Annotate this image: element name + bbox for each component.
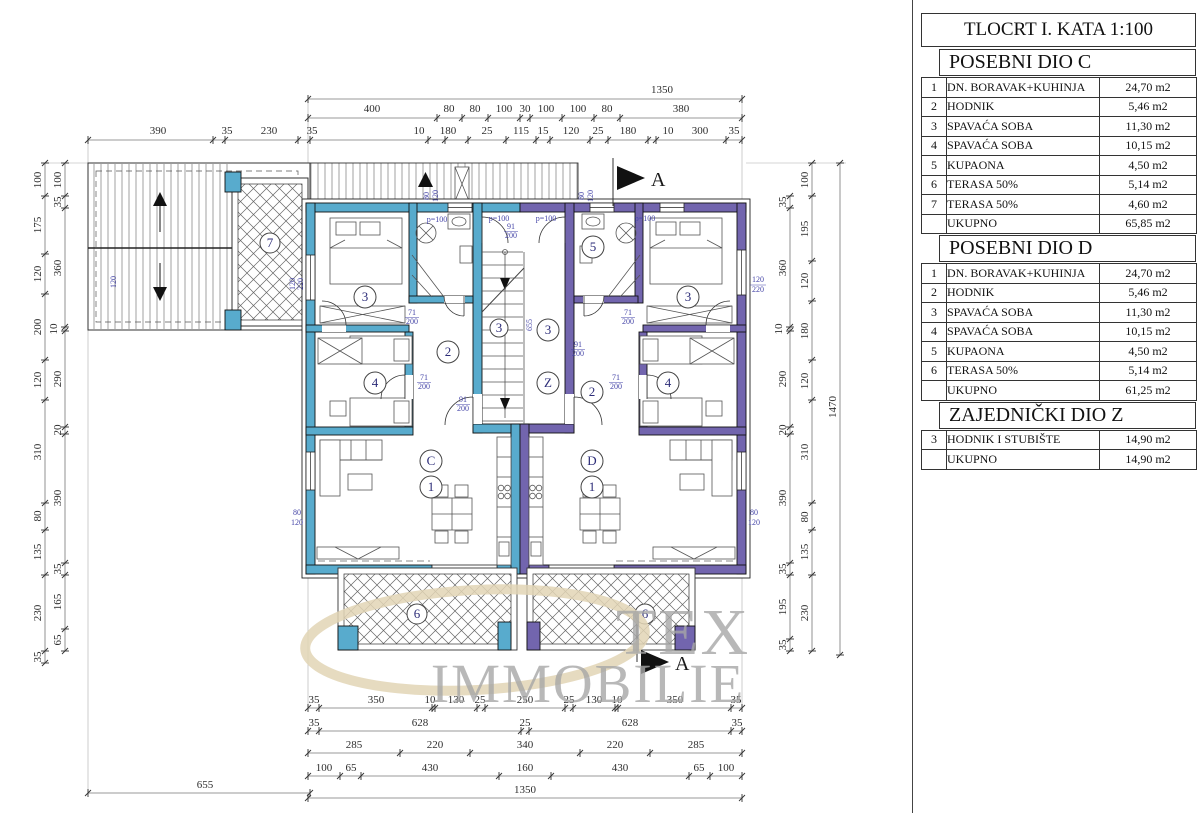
svg-text:285: 285	[346, 739, 363, 751]
room-number-cell: 1	[922, 264, 947, 284]
svg-text:220: 220	[607, 739, 624, 751]
svg-text:71: 71	[612, 373, 620, 382]
svg-text:628: 628	[412, 717, 429, 729]
svg-text:120: 120	[32, 371, 44, 388]
room-area-cell: 11,30 m2	[1100, 303, 1197, 323]
room-area-cell: 14,90 m2	[1100, 450, 1197, 470]
watermark-line2: IMMOBILIE	[431, 653, 745, 714]
room-name-cell: DN. BORAVAK+KUHINJA	[947, 264, 1100, 284]
svg-text:7: 7	[267, 235, 274, 250]
room-name-cell: TERASA 50%	[947, 175, 1100, 195]
svg-text:35: 35	[309, 717, 321, 729]
svg-text:120: 120	[291, 518, 303, 527]
svg-text:360: 360	[52, 259, 64, 276]
area-table-c: 1 DN. BORAVAK+KUHINJA 24,70 m2 2 HODNIK …	[921, 77, 1197, 234]
svg-text:390: 390	[150, 125, 167, 137]
svg-text:195: 195	[799, 220, 811, 237]
room-area-cell: 5,14 m2	[1100, 175, 1197, 195]
svg-text:360: 360	[777, 259, 789, 276]
svg-text:200: 200	[457, 404, 469, 413]
room-number-cell: 6	[922, 175, 947, 195]
svg-text:35: 35	[777, 196, 789, 208]
room-name-cell: UKUPNO	[947, 214, 1100, 234]
table-row: 5 KUPAONA 4,50 m2	[922, 342, 1197, 362]
svg-text:220: 220	[427, 739, 444, 751]
svg-text:D: D	[587, 453, 596, 468]
drawing-title: TLOCRT I. KATA 1:100	[921, 13, 1196, 47]
room-name-cell: SPAVAĆA SOBA	[947, 303, 1100, 323]
svg-text:100: 100	[799, 171, 811, 188]
room-name-cell: DN. BORAVAK+KUHINJA	[947, 78, 1100, 98]
svg-text:10: 10	[773, 323, 785, 335]
svg-text:25: 25	[482, 125, 494, 137]
floor-plan-sheet: 1350 40080 80100 30100 10080 380 39035 2…	[0, 0, 1200, 813]
room-name-cell: HODNIK	[947, 283, 1100, 303]
svg-text:35: 35	[52, 196, 64, 208]
room-area-cell: 5,46 m2	[1100, 283, 1197, 303]
svg-text:p=100: p=100	[635, 214, 656, 223]
svg-text:80: 80	[470, 103, 482, 115]
svg-text:100: 100	[538, 103, 555, 115]
svg-text:p=100: p=100	[427, 215, 448, 224]
svg-text:35: 35	[222, 125, 234, 137]
room-name-cell: SPAVAĆA SOBA	[947, 117, 1100, 137]
svg-text:350: 350	[368, 694, 385, 706]
svg-text:310: 310	[799, 443, 811, 460]
table-row: 2 HODNIK 5,46 m2	[922, 97, 1197, 117]
svg-text:80: 80	[750, 508, 758, 517]
floor-plan-drawing: 1350 40080 80100 30100 10080 380 39035 2…	[0, 0, 912, 813]
room-number-cell: 2	[922, 283, 947, 303]
room-area-cell: 24,70 m2	[1100, 78, 1197, 98]
table-row: 6 TERASA 50% 5,14 m2	[922, 361, 1197, 381]
svg-text:91: 91	[574, 340, 582, 349]
svg-text:100: 100	[316, 762, 333, 774]
section-heading-z: ZAJEDNIČKI DIO Z	[939, 402, 1196, 429]
svg-text:300: 300	[692, 125, 709, 137]
table-row: UKUPNO 61,25 m2	[922, 381, 1197, 401]
svg-text:628: 628	[622, 717, 639, 729]
svg-text:1: 1	[428, 479, 435, 494]
svg-text:120: 120	[752, 275, 764, 284]
svg-text:71: 71	[408, 308, 416, 317]
svg-text:20: 20	[777, 424, 789, 436]
svg-text:200: 200	[32, 318, 44, 335]
svg-text:6: 6	[414, 606, 421, 621]
svg-text:390: 390	[52, 489, 64, 506]
room-name-cell: KUPAONA	[947, 342, 1100, 362]
svg-text:71: 71	[624, 308, 632, 317]
svg-text:120: 120	[563, 125, 580, 137]
svg-text:115: 115	[513, 125, 530, 137]
left-dimension-labels: 100 175 120 200 120 310 80 135 230 35 10…	[32, 171, 64, 662]
room-area-cell: 4,60 m2	[1100, 195, 1197, 215]
svg-text:310: 310	[32, 443, 44, 460]
svg-text:200: 200	[622, 317, 634, 326]
svg-text:2: 2	[445, 344, 452, 359]
svg-text:35: 35	[777, 563, 789, 575]
section-heading-c: POSEBNI DIO C	[939, 49, 1196, 76]
svg-text:15: 15	[538, 125, 550, 137]
svg-text:195: 195	[777, 598, 789, 615]
svg-text:100: 100	[496, 103, 513, 115]
room-name-cell: TERASA 50%	[947, 361, 1100, 381]
svg-text:35: 35	[777, 639, 789, 651]
svg-text:655: 655	[525, 319, 534, 331]
svg-text:230: 230	[261, 125, 278, 137]
svg-text:1470: 1470	[827, 396, 839, 419]
svg-text:Z: Z	[544, 375, 552, 390]
room-number-cell: 7	[922, 195, 947, 215]
svg-text:80: 80	[32, 510, 44, 522]
svg-text:100: 100	[52, 171, 64, 188]
svg-text:175: 175	[32, 216, 44, 233]
svg-text:3: 3	[685, 289, 692, 304]
legend-panel: TLOCRT I. KATA 1:100 POSEBNI DIO C 1 DN.…	[912, 0, 1200, 813]
svg-text:10: 10	[48, 323, 60, 335]
svg-text:10: 10	[414, 125, 426, 137]
room-name-cell: HODNIK I STUBIŠTE	[947, 430, 1100, 450]
room-area-cell: 65,85 m2	[1100, 214, 1197, 234]
svg-text:340: 340	[517, 739, 534, 751]
table-row: UKUPNO 65,85 m2	[922, 214, 1197, 234]
room-number-cell: 1	[922, 78, 947, 98]
svg-text:180: 180	[620, 125, 637, 137]
room-area-cell: 5,14 m2	[1100, 361, 1197, 381]
svg-text:A: A	[651, 169, 666, 191]
room-number-cell	[922, 450, 947, 470]
table-row: 2 HODNIK 5,46 m2	[922, 283, 1197, 303]
svg-text:1350: 1350	[514, 784, 537, 796]
room-number-cell: 3	[922, 430, 947, 450]
svg-text:200: 200	[505, 231, 517, 240]
svg-text:80: 80	[293, 508, 301, 517]
svg-text:135: 135	[799, 543, 811, 560]
room-area-cell: 4,50 m2	[1100, 156, 1197, 176]
room-name-cell: KUPAONA	[947, 156, 1100, 176]
svg-text:3: 3	[496, 320, 503, 335]
svg-text:C: C	[427, 453, 436, 468]
top-dimension-labels: 1350 40080 80100 30100 10080 380 39035 2…	[150, 84, 740, 137]
svg-text:71: 71	[420, 373, 428, 382]
svg-text:120: 120	[799, 372, 811, 389]
svg-text:80: 80	[577, 192, 586, 200]
room-area-cell: 5,46 m2	[1100, 97, 1197, 117]
svg-text:3: 3	[362, 289, 369, 304]
svg-text:180: 180	[799, 322, 811, 339]
svg-text:25: 25	[520, 717, 532, 729]
svg-text:390: 390	[777, 489, 789, 506]
svg-text:80: 80	[444, 103, 456, 115]
svg-text:4: 4	[665, 375, 672, 390]
svg-text:1: 1	[589, 479, 596, 494]
room-number-cell: 3	[922, 303, 947, 323]
svg-text:100: 100	[570, 103, 587, 115]
table-row: 4 SPAVAĆA SOBA 10,15 m2	[922, 322, 1197, 342]
room-number-cell: 2	[922, 97, 947, 117]
table-row: 6 TERASA 50% 5,14 m2	[922, 175, 1197, 195]
svg-text:230: 230	[32, 604, 44, 621]
table-row: 5 KUPAONA 4,50 m2	[922, 156, 1197, 176]
svg-text:220: 220	[752, 285, 764, 294]
svg-text:120: 120	[748, 518, 760, 527]
area-table-z: 3 HODNIK I STUBIŠTE 14,90 m2 UKUPNO 14,9…	[921, 430, 1197, 470]
svg-text:165: 165	[52, 593, 64, 610]
room-number-cell: 6	[922, 361, 947, 381]
svg-text:80: 80	[602, 103, 614, 115]
table-row: 3 HODNIK I STUBIŠTE 14,90 m2	[922, 430, 1197, 450]
svg-text:30: 30	[520, 103, 532, 115]
room-number-cell: 3	[922, 117, 947, 137]
room-number-cell: 5	[922, 156, 947, 176]
svg-text:80: 80	[422, 192, 431, 200]
svg-text:430: 430	[422, 762, 439, 774]
svg-text:135: 135	[32, 543, 44, 560]
table-row: 3 SPAVAĆA SOBA 11,30 m2	[922, 117, 1197, 137]
svg-text:25: 25	[593, 125, 605, 137]
svg-text:65: 65	[346, 762, 358, 774]
svg-text:655: 655	[197, 779, 214, 791]
room-number-cell: 4	[922, 322, 947, 342]
room-name-cell: HODNIK	[947, 97, 1100, 117]
svg-text:180: 180	[440, 125, 457, 137]
drawing-title-text: TLOCRT I. KATA 1:100	[964, 19, 1153, 41]
svg-text:200: 200	[610, 382, 622, 391]
svg-text:200: 200	[572, 349, 584, 358]
room-area-cell: 24,70 m2	[1100, 264, 1197, 284]
room-name-cell: SPAVAĆA SOBA	[947, 322, 1100, 342]
table-row: 4 SPAVAĆA SOBA 10,15 m2	[922, 136, 1197, 156]
svg-text:120: 120	[431, 190, 440, 202]
svg-text:290: 290	[777, 370, 789, 387]
room-area-cell: 61,25 m2	[1100, 381, 1197, 401]
room-number-cell: 4	[922, 136, 947, 156]
svg-text:20: 20	[52, 424, 64, 436]
room-area-cell: 10,15 m2	[1100, 322, 1197, 342]
svg-text:80: 80	[799, 511, 811, 523]
svg-text:100: 100	[718, 762, 735, 774]
table-row: UKUPNO 14,90 m2	[922, 450, 1197, 470]
svg-text:35: 35	[309, 694, 321, 706]
svg-text:285: 285	[688, 739, 705, 751]
svg-text:230: 230	[799, 604, 811, 621]
svg-text:100: 100	[32, 171, 44, 188]
section-heading-d: POSEBNI DIO D	[939, 235, 1196, 262]
area-table-d: 1 DN. BORAVAK+KUHINJA 24,70 m2 2 HODNIK …	[921, 263, 1197, 401]
svg-text:120: 120	[109, 276, 118, 288]
svg-text:p=100: p=100	[536, 214, 557, 223]
svg-text:220: 220	[296, 278, 305, 290]
svg-text:200: 200	[418, 382, 430, 391]
svg-text:120: 120	[32, 265, 44, 282]
room-area-cell: 10,15 m2	[1100, 136, 1197, 156]
svg-text:120: 120	[586, 190, 595, 202]
svg-text:1350: 1350	[651, 84, 674, 96]
room-area-cell: 4,50 m2	[1100, 342, 1197, 362]
svg-text:4: 4	[372, 375, 379, 390]
svg-text:400: 400	[364, 103, 381, 115]
svg-text:35: 35	[729, 125, 741, 137]
room-name-cell: SPAVAĆA SOBA	[947, 136, 1100, 156]
room-number-cell	[922, 381, 947, 401]
table-row: 7 TERASA 50% 4,60 m2	[922, 195, 1197, 215]
svg-text:380: 380	[673, 103, 690, 115]
room-name-cell: UKUPNO	[947, 450, 1100, 470]
room-area-cell: 14,90 m2	[1100, 430, 1197, 450]
svg-text:5: 5	[590, 239, 597, 254]
svg-text:91: 91	[459, 395, 467, 404]
svg-text:3: 3	[545, 322, 552, 337]
room-name-cell: TERASA 50%	[947, 195, 1100, 215]
svg-text:10: 10	[663, 125, 675, 137]
room-name-cell: UKUPNO	[947, 381, 1100, 401]
svg-text:430: 430	[612, 762, 629, 774]
svg-text:35: 35	[732, 717, 744, 729]
room-area-cell: 11,30 m2	[1100, 117, 1197, 137]
svg-text:290: 290	[52, 370, 64, 387]
svg-text:35: 35	[52, 563, 64, 575]
svg-text:91: 91	[507, 222, 515, 231]
svg-text:160: 160	[517, 762, 534, 774]
room-number-cell: 5	[922, 342, 947, 362]
svg-text:65: 65	[52, 634, 64, 646]
svg-text:200: 200	[406, 317, 418, 326]
table-row: 3 SPAVAĆA SOBA 11,30 m2	[922, 303, 1197, 323]
right-dimension-labels: 35 360 10 290 20 390 35 195 35 100 195 1…	[773, 171, 839, 650]
svg-text:120: 120	[799, 272, 811, 289]
svg-text:35: 35	[32, 651, 44, 663]
table-row: 1 DN. BORAVAK+KUHINJA 24,70 m2	[922, 264, 1197, 284]
svg-text:65: 65	[694, 762, 706, 774]
svg-text:2: 2	[589, 384, 596, 399]
svg-text:35: 35	[307, 125, 319, 137]
table-row: 1 DN. BORAVAK+KUHINJA 24,70 m2	[922, 78, 1197, 98]
room-number-cell	[922, 214, 947, 234]
